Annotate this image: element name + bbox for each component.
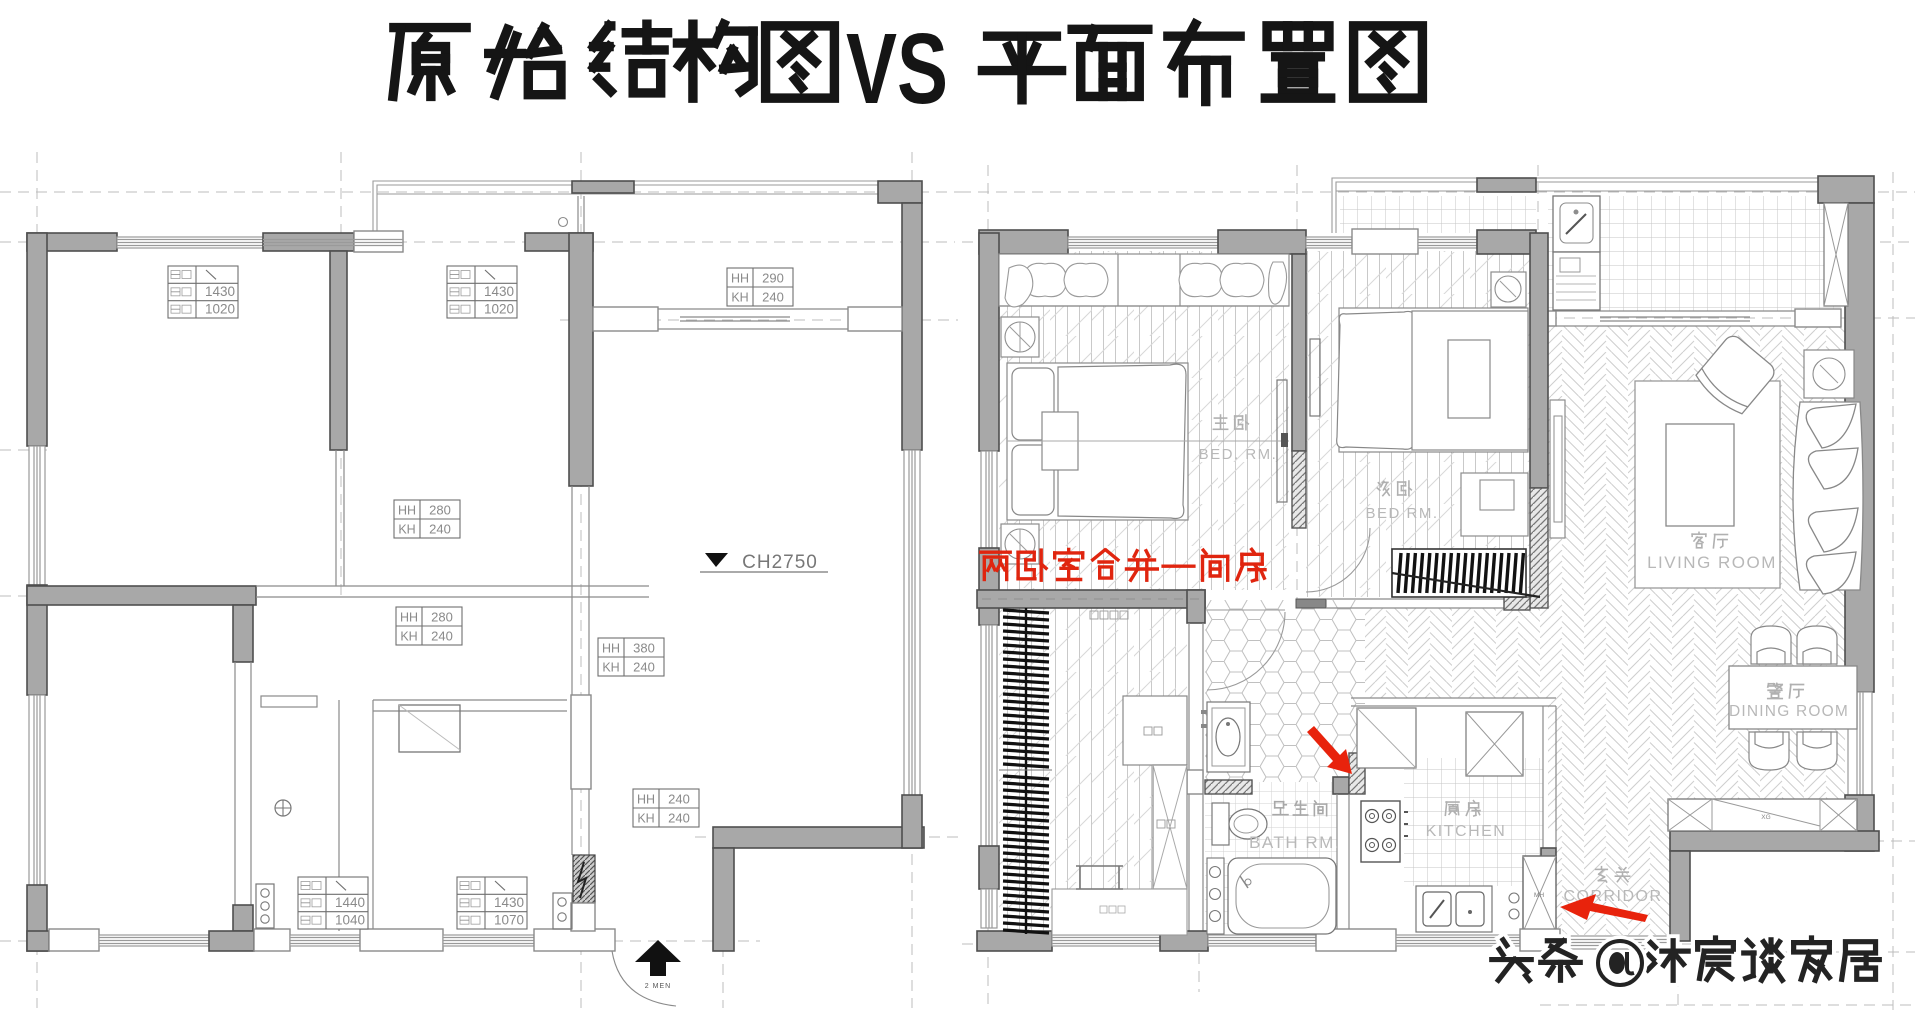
svg-text:240: 240	[431, 629, 453, 644]
svg-text:240: 240	[762, 290, 784, 305]
svg-text:HH: HH	[398, 504, 416, 518]
svg-text:KH: KH	[398, 523, 415, 537]
svg-text:CH2750: CH2750	[742, 552, 818, 573]
svg-text:KH: KH	[400, 630, 417, 644]
svg-text:1430: 1430	[494, 895, 524, 910]
svg-text:KITCHEN: KITCHEN	[1426, 823, 1507, 840]
svg-text:XG: XG	[1761, 814, 1770, 821]
svg-text:280: 280	[429, 503, 451, 518]
svg-text:240: 240	[429, 522, 451, 537]
svg-text:240: 240	[668, 811, 690, 826]
svg-text:KH: KH	[602, 661, 619, 675]
svg-text:HH: HH	[602, 642, 620, 656]
svg-text:HH: HH	[637, 793, 655, 807]
svg-text:MH: MH	[1534, 892, 1544, 899]
svg-text:1430: 1430	[205, 284, 235, 299]
svg-text:240: 240	[633, 660, 655, 675]
svg-text:KH: KH	[731, 291, 748, 305]
svg-text:1440: 1440	[335, 895, 365, 910]
svg-text:VS: VS	[846, 13, 948, 125]
svg-text:KH: KH	[637, 812, 654, 826]
svg-text:380: 380	[633, 641, 655, 656]
svg-text:240: 240	[668, 792, 690, 807]
svg-text:BED RM.: BED RM.	[1365, 505, 1438, 522]
svg-text:DINING ROOM: DINING ROOM	[1729, 703, 1849, 720]
svg-text:LIVING ROOM: LIVING ROOM	[1647, 553, 1777, 572]
svg-text:1070: 1070	[494, 913, 524, 928]
svg-text:1430: 1430	[484, 284, 514, 299]
svg-text:2 MEN: 2 MEN	[645, 983, 671, 990]
svg-text:1040: 1040	[335, 913, 365, 928]
svg-text:280: 280	[431, 610, 453, 625]
svg-text:1020: 1020	[484, 302, 514, 317]
svg-text:HH: HH	[731, 272, 749, 286]
svg-text:290: 290	[762, 271, 784, 286]
svg-text:1020: 1020	[205, 302, 235, 317]
svg-text:HH: HH	[400, 611, 418, 625]
svg-text:BATH RM.: BATH RM.	[1249, 833, 1341, 852]
svg-text:BED. RM.: BED. RM.	[1199, 446, 1278, 463]
